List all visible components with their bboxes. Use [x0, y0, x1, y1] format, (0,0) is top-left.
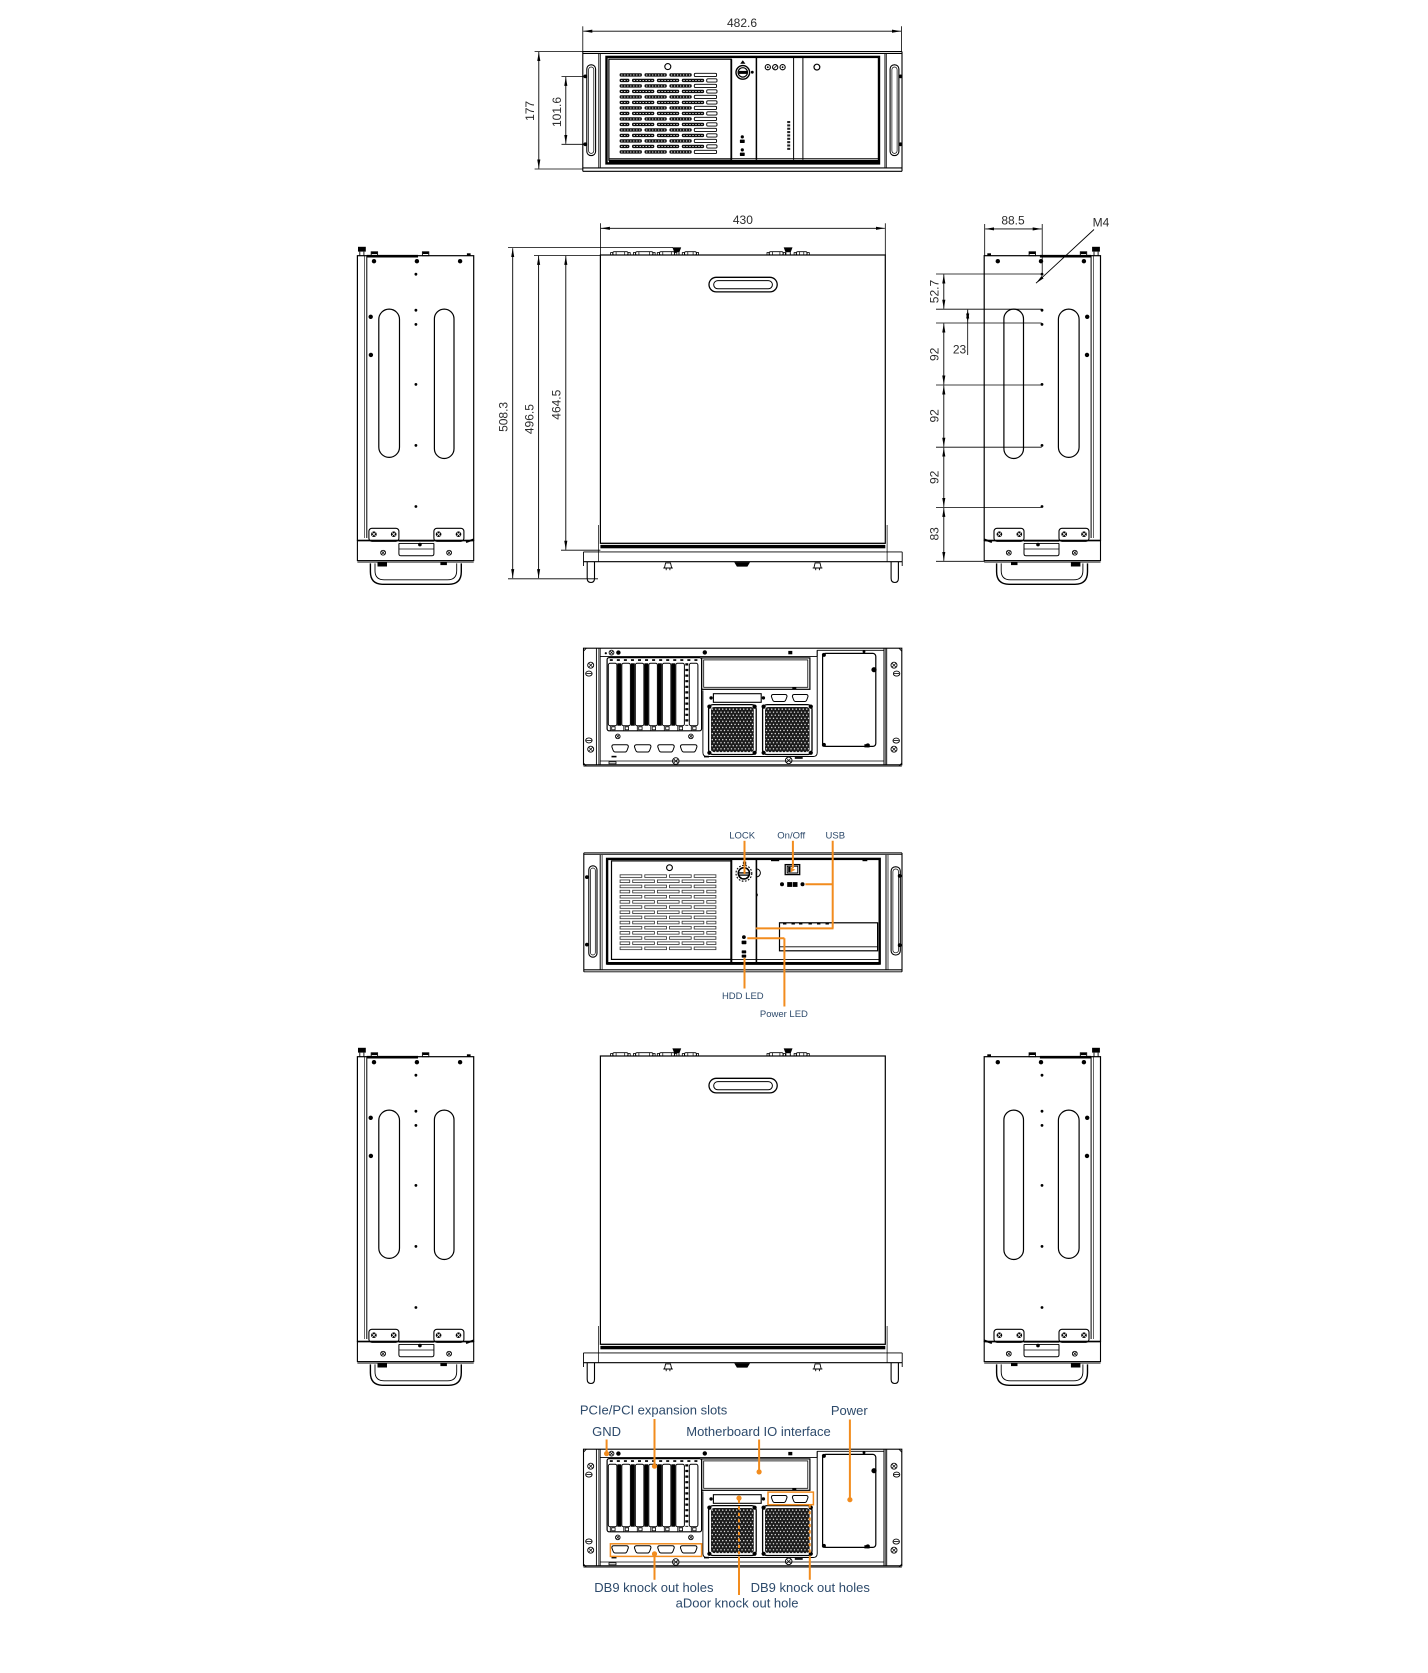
- svg-text:101.6: 101.6: [550, 97, 564, 127]
- svg-text:HDD LED: HDD LED: [722, 991, 764, 1002]
- svg-text:Power LED: Power LED: [760, 1009, 808, 1020]
- svg-text:23: 23: [953, 343, 967, 357]
- svg-text:92: 92: [928, 470, 942, 484]
- svg-text:92: 92: [928, 347, 942, 361]
- svg-text:496.5: 496.5: [522, 404, 536, 434]
- svg-text:92: 92: [928, 409, 942, 423]
- svg-text:52.7: 52.7: [928, 279, 942, 303]
- svg-text:508.3: 508.3: [496, 402, 510, 432]
- svg-text:DB9 knock out holes: DB9 knock out holes: [594, 1580, 714, 1595]
- svg-text:aDoor knock out hole: aDoor knock out hole: [676, 1596, 799, 1611]
- svg-text:USB: USB: [826, 831, 846, 842]
- svg-text:88.5: 88.5: [1001, 213, 1025, 227]
- svg-text:LOCK: LOCK: [729, 831, 756, 842]
- svg-text:Motherboard IO interface: Motherboard IO interface: [686, 1424, 831, 1439]
- svg-text:177: 177: [523, 101, 537, 121]
- svg-text:M4: M4: [1093, 216, 1110, 230]
- svg-text:430: 430: [733, 213, 753, 227]
- svg-text:Power: Power: [831, 1403, 869, 1418]
- svg-text:83: 83: [928, 527, 942, 541]
- svg-text:464.5: 464.5: [550, 389, 564, 419]
- svg-text:482.6: 482.6: [727, 16, 757, 30]
- svg-text:On/Off: On/Off: [777, 831, 805, 842]
- svg-text:DB9 knock out holes: DB9 knock out holes: [751, 1580, 871, 1595]
- svg-text:PCIe/PCI expansion slots: PCIe/PCI expansion slots: [580, 1403, 728, 1418]
- svg-text:GND: GND: [592, 1424, 621, 1439]
